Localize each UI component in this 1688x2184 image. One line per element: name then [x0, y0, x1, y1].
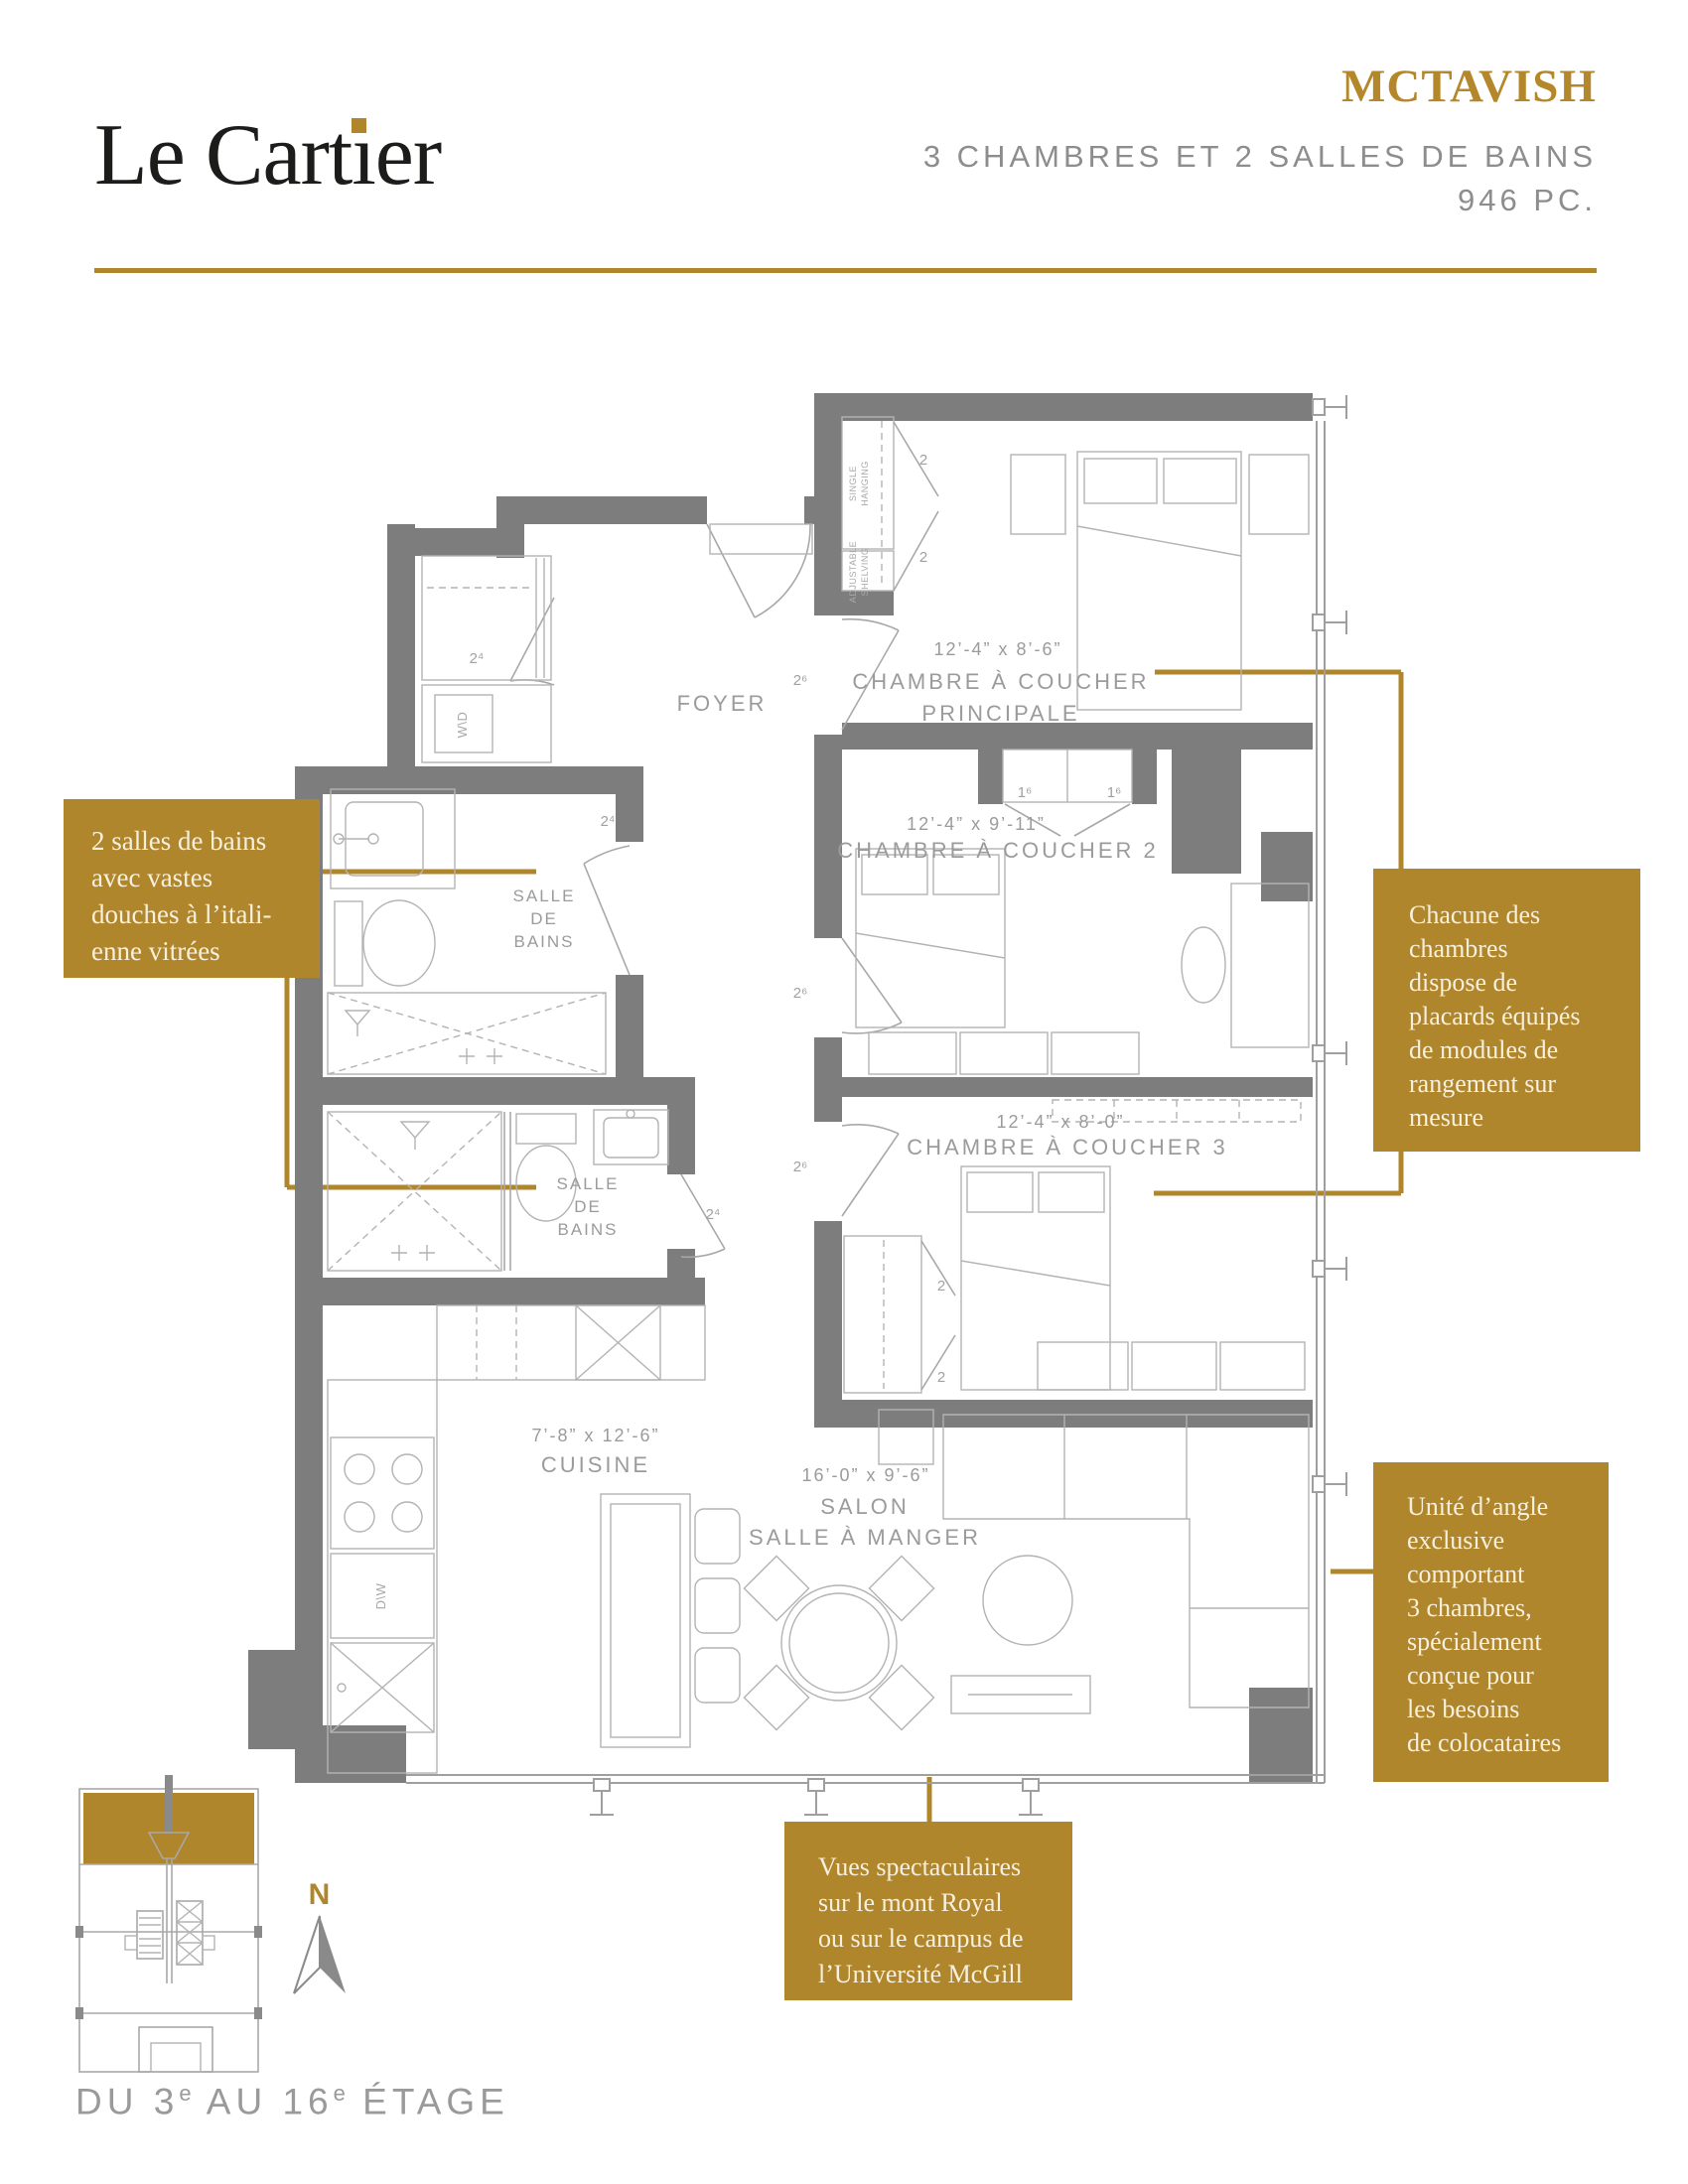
- header-divider: [94, 268, 1597, 273]
- door-size-labels: 2⁴ 2⁴ 2⁴ 2⁶ 2⁶ 2⁶ 1⁶ 1⁶ 2 2 2 2 SINGLE H…: [373, 452, 1121, 1609]
- bottom-mullions: [590, 1779, 1043, 1815]
- callout-views: Vues spectaculaires sur le mont Royal ou…: [784, 1822, 1072, 2000]
- label-salon-name: SALON: [820, 1494, 910, 1519]
- label-bedroom2-dims: 12’-4” x 9’-11”: [907, 814, 1046, 834]
- svg-text:2: 2: [937, 1278, 945, 1295]
- logo-gold-dot-icon: [352, 118, 366, 133]
- svg-text:DE: DE: [530, 909, 558, 928]
- callout-bathrooms: 2 salles de bains avec vastes douches à …: [64, 799, 320, 978]
- svg-text:2: 2: [919, 549, 927, 566]
- label-kitchen-name: CUISINE: [541, 1452, 650, 1477]
- svg-text:SINGLE: SINGLE: [848, 466, 858, 501]
- north-arrow: N: [294, 1878, 346, 1993]
- svg-text:ADJUSTABLE: ADJUSTABLE: [848, 541, 858, 603]
- svg-text:1⁶: 1⁶: [1018, 784, 1033, 801]
- svg-text:SALLE: SALLE: [557, 1174, 620, 1193]
- callout-corner-unit: Unité d’angle exclusive comportant 3 cha…: [1373, 1462, 1609, 1782]
- washer-dryer-label: W\D: [455, 712, 470, 739]
- svg-text:2⁴: 2⁴: [706, 1206, 721, 1223]
- label-kitchen-dims: 7’-8” x 12’-6”: [531, 1426, 659, 1445]
- label-master-name: CHAMBRE À COUCHER: [852, 669, 1149, 694]
- svg-text:1⁶: 1⁶: [1107, 784, 1122, 801]
- label-salon-dims: 16’-0” x 9’-6”: [801, 1465, 929, 1485]
- walls: [248, 393, 1313, 1783]
- floor-range-caption: DU 3e AU 16e ÉTAGE: [75, 2081, 509, 2122]
- label-bedroom2-name: CHAMBRE À COUCHER 2: [837, 838, 1158, 863]
- unit-name: MCTAVISH: [923, 60, 1597, 113]
- svg-text:BAINS: BAINS: [557, 1220, 618, 1239]
- svg-text:2⁶: 2⁶: [793, 1159, 808, 1175]
- label-bedroom3-dims: 12’-4” x 8’-0”: [996, 1112, 1124, 1132]
- brochure-page: FOYER 12’-4” x 8’-6” CHAMBRE À COUCHER P…: [0, 0, 1688, 2184]
- unit-subtitle: 3 CHAMBRES ET 2 SALLES DE BAINS: [923, 139, 1597, 175]
- svg-text:SHELVING: SHELVING: [860, 548, 870, 597]
- label-salon-name2: SALLE À MANGER: [749, 1525, 981, 1550]
- svg-text:DE: DE: [574, 1197, 602, 1216]
- label-bath2: SALLE DE BAINS: [557, 1174, 620, 1239]
- dishwasher-label: D\W: [373, 1582, 388, 1609]
- label-foyer: FOYER: [677, 691, 768, 716]
- svg-text:2: 2: [937, 1369, 945, 1386]
- kitchen-fixtures: [328, 1305, 740, 1773]
- header-unit-info: MCTAVISH 3 CHAMBRES ET 2 SALLES DE BAINS…: [923, 60, 1597, 218]
- callout-closets: Chacune des chambres dispose de placards…: [1373, 869, 1640, 1152]
- north-label: N: [309, 1878, 332, 1911]
- svg-text:2⁶: 2⁶: [793, 985, 808, 1002]
- label-bath1: SALLE DE BAINS: [513, 887, 576, 951]
- svg-text:2⁶: 2⁶: [793, 672, 808, 689]
- brand-logo: Le Cartıer: [94, 105, 441, 205]
- unit-area: 946 PC.: [923, 183, 1597, 218]
- keyplan: [75, 1775, 262, 2072]
- svg-text:HANGING: HANGING: [860, 461, 870, 506]
- svg-text:2⁴: 2⁴: [470, 650, 485, 667]
- logo-text: Le Cart: [94, 107, 352, 204]
- svg-text:2: 2: [919, 452, 927, 469]
- label-master-dims: 12’-4” x 8’-6”: [933, 639, 1061, 659]
- label-master-name2: PRINCIPALE: [921, 701, 1079, 726]
- svg-text:BAINS: BAINS: [513, 932, 574, 951]
- svg-text:2⁴: 2⁴: [601, 813, 616, 830]
- label-bedroom3-name: CHAMBRE À COUCHER 3: [907, 1135, 1227, 1160]
- svg-text:SALLE: SALLE: [513, 887, 576, 905]
- right-mullions: [1313, 395, 1346, 1496]
